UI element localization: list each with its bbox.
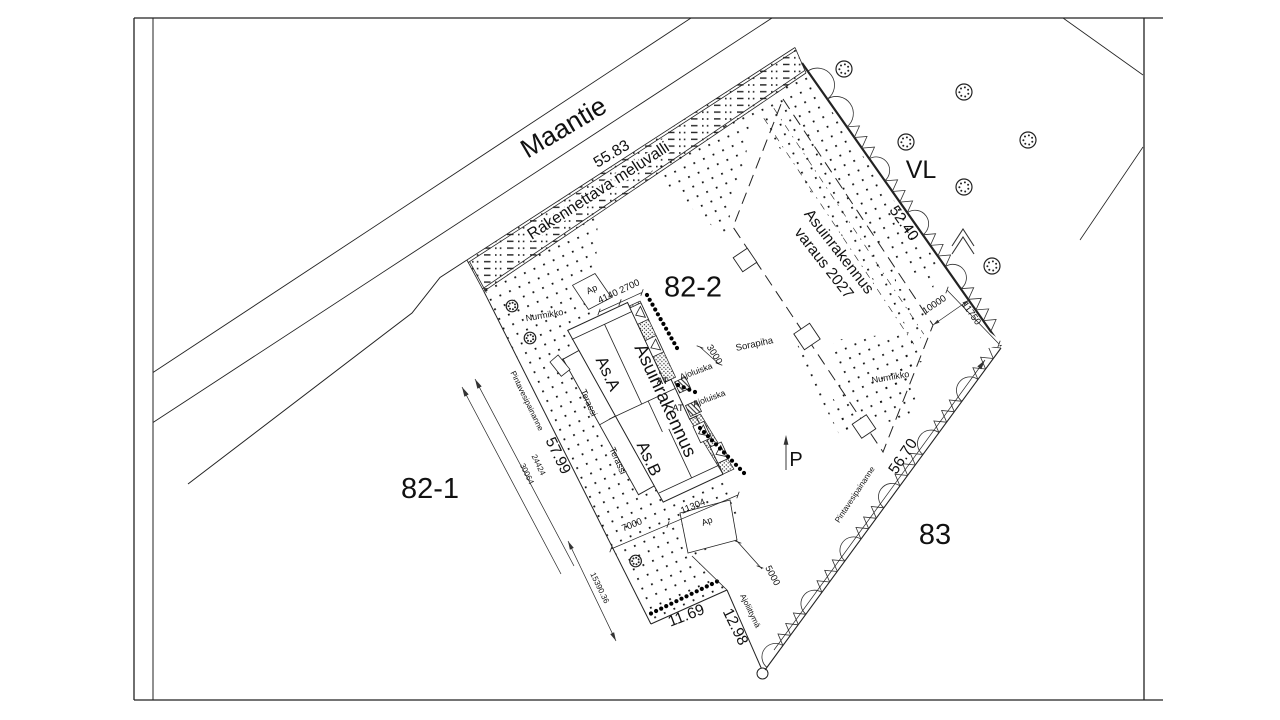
svg-text:83: 83: [919, 519, 951, 551]
svg-text:AT: AT: [657, 376, 669, 387]
svg-text:82-1: 82-1: [401, 473, 459, 505]
svg-text:AT: AT: [672, 403, 684, 414]
svg-text:82-2: 82-2: [664, 272, 722, 304]
svg-text:VL: VL: [906, 156, 937, 184]
svg-text:P: P: [789, 449, 802, 471]
